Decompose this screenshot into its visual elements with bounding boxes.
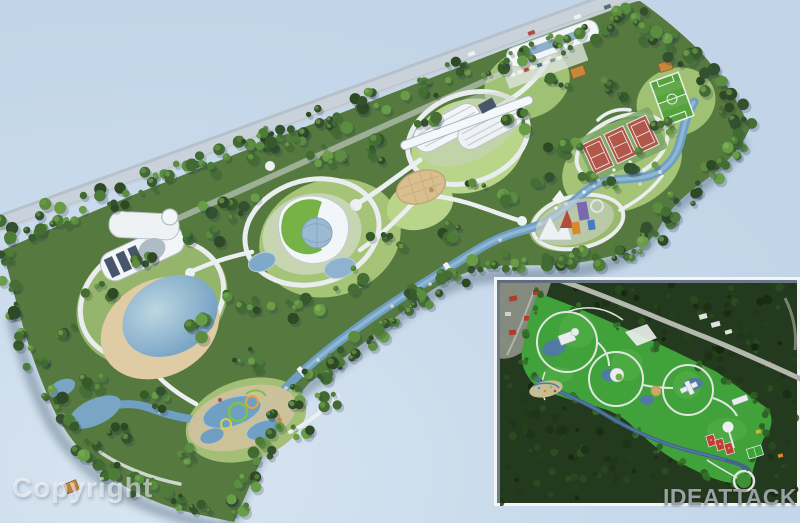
inset-map <box>494 277 800 506</box>
inset-path-node <box>723 422 734 433</box>
masterplan-screenshot: Copyright IDEATTACK <box>0 0 800 523</box>
inset-dome <box>616 374 623 381</box>
ideattack-logo: IDEATTACK <box>663 484 797 511</box>
inset-sand-plaza <box>651 386 661 396</box>
copyright-watermark: Copyright <box>12 472 153 504</box>
